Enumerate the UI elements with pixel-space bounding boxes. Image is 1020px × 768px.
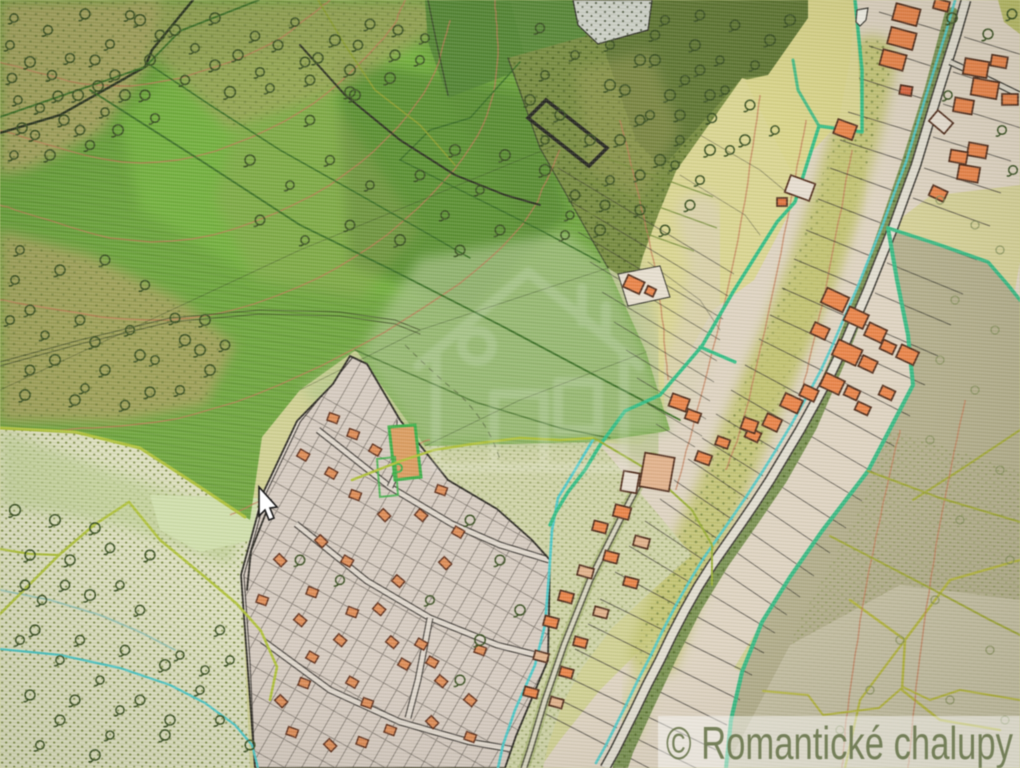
svg-text:© Romantické chalupy: © Romantické chalupy — [666, 717, 1013, 768]
